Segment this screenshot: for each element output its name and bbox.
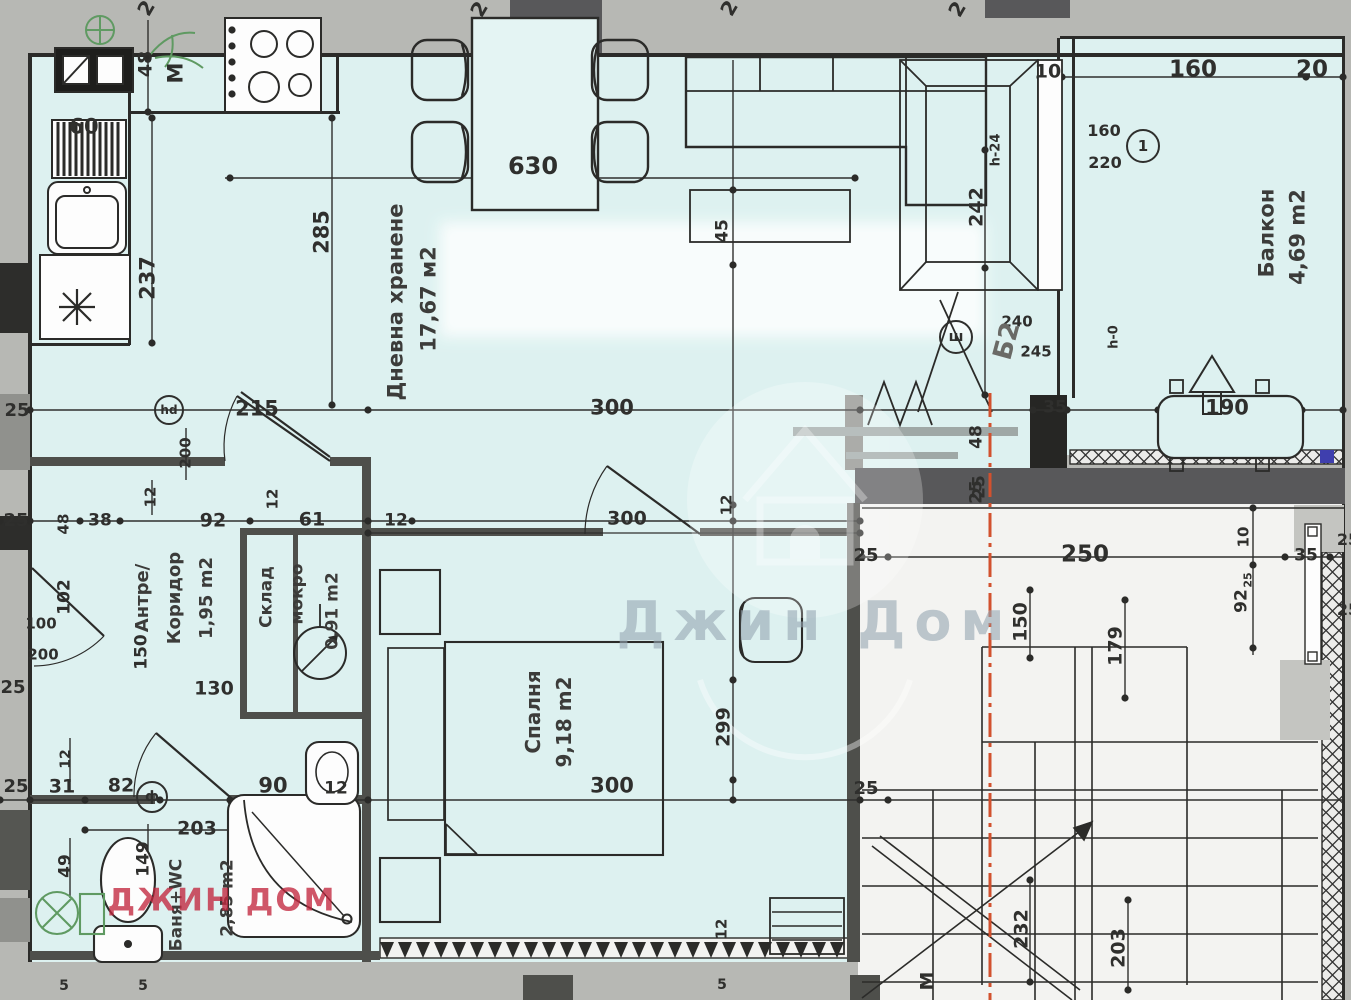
dimension-label: 49 [58,854,75,878]
plan-marker: hd [154,395,184,425]
dimension-label: 160 [1169,59,1217,82]
dimension-label: h-0 [1108,325,1121,349]
room-label: Антре/ [134,564,152,632]
dimension-label: 12 [144,487,159,508]
dimension-label: 5 [138,979,148,993]
dimension-label: M [919,972,938,991]
dimension-label: 82 [108,777,134,796]
label-layer: 222248M60237285630Дневна хранене17,67 м2… [0,0,1351,1000]
dimension-label: 237 [138,256,159,300]
dimension-label: 2 [467,0,491,20]
room-label: мокро [290,564,307,625]
dimension-label: 200 [179,437,194,468]
dimension-label: 203 [177,820,217,839]
dimension-label: 12 [59,749,73,768]
room-label: Склад [259,566,276,628]
watermark-text: ДЖИН ДОМ [107,886,336,917]
dimension-label: 90 [258,776,287,797]
dimension-label: 242 [968,187,987,227]
dimension-label: 149 [136,841,153,877]
dimension-label: 48 [969,425,986,449]
plan-marker: ш [939,320,973,354]
dimension-label: 25 [972,475,989,499]
room-label: Спалня [523,670,543,753]
room-label: Дневна хранене [386,204,407,401]
dimension-label: 25 [853,780,878,798]
room-label: 4,69 m2 [1288,189,1309,285]
dimension-label: 130 [194,680,234,699]
dimension-label: 35 [1043,400,1067,417]
room-label: 9,18 m2 [554,676,574,767]
dimension-label: 5 [717,978,727,992]
dimension-label: 10 [1237,527,1252,548]
dimension-label: 232 [1013,909,1032,949]
dimension-label: 48 [57,514,72,535]
dimension-label: 31 [49,778,75,797]
dimension-label: 25 [1337,532,1351,548]
dimension-label: 25 [0,679,25,697]
dimension-label: 10 [1035,63,1061,82]
dimension-label: 2 [134,0,158,19]
dimension-label: 150 [1012,602,1031,642]
room-label: Коридор [166,552,184,644]
dimension-label: 35 [1294,548,1318,565]
dimension-label: 45 [715,219,732,243]
room-label: Б2 [990,319,1025,362]
dimension-label: 2 [717,0,741,19]
dimension-label: 102 [57,579,74,615]
room-label: 1,95 m2 [198,557,216,639]
dimension-label: 92 [1234,589,1251,613]
dimension-label: h-24 [990,134,1003,167]
dimension-label: 300 [607,510,647,529]
dimension-label: 20 [1296,59,1328,82]
room-label: Балкон [1257,189,1278,278]
plan-marker: ф [136,781,168,813]
room-label: 0,91 m2 [325,572,342,649]
dimension-label: 92 [200,512,226,531]
dimension-label: 12 [720,495,735,516]
dimension-label: 38 [88,513,112,530]
dimension-label: 160 [1087,123,1120,139]
dimension-label: 25 [1243,572,1254,587]
dimension-label: 12 [266,489,281,510]
dimension-label: 200 [27,648,58,663]
dimension-label: 220 [1088,155,1121,171]
dimension-label: 215 [235,399,279,420]
dimension-label: 60 [69,117,98,138]
dimension-label: 630 [508,154,558,178]
dimension-label: 12 [324,781,348,798]
dimension-label: M [166,63,187,84]
dimension-label: 61 [299,511,325,530]
dimension-label: 179 [1107,626,1126,666]
watermark-text: Джин Дом [616,595,1013,649]
floor-plan: 222248M60237285630Дневна хранене17,67 м2… [0,0,1351,1000]
dimension-label: 203 [1110,928,1129,968]
dimension-label: 25 [853,547,878,565]
dimension-label: 300 [590,776,634,797]
dimension-label: 25 [4,402,29,420]
room-label: 17,67 м2 [419,246,440,352]
dimension-label: 190 [1205,398,1249,419]
dimension-label: 150 [134,634,151,670]
dimension-label: 2 [945,0,969,20]
dimension-label: 25 [1337,602,1351,618]
dimension-label: 100 [25,617,56,632]
dimension-label: 299 [715,707,734,747]
dimension-label: 12 [384,513,408,530]
dimension-label: 25 [3,512,28,530]
dimension-label: 5 [59,979,69,993]
dimension-label: 48 [137,51,156,77]
dimension-label: 285 [312,210,333,254]
dimension-label: 250 [1061,544,1109,567]
plan-marker: 1 [1126,129,1160,163]
dimension-label: 300 [590,398,634,419]
dimension-label: 25 [3,778,28,796]
dimension-label: 12 [715,919,730,940]
dimension-label: 245 [1020,345,1051,360]
